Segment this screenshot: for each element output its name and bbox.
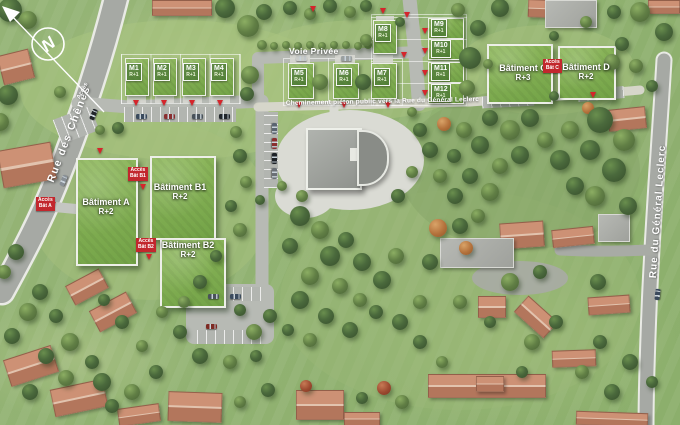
tree: [615, 37, 629, 51]
lot-name: M7: [377, 70, 387, 77]
lot-badge-m8: M8 R+1: [375, 24, 391, 42]
tree: [437, 117, 451, 131]
car: [341, 56, 352, 61]
building-floors: R+2: [552, 72, 620, 81]
label-batiment-b1: Bâtiment B1 R+2: [145, 182, 215, 202]
tree: [471, 136, 489, 154]
access-pin: [404, 12, 410, 18]
tree: [459, 80, 475, 96]
tree: [447, 188, 463, 204]
building-floors: R+2: [71, 207, 141, 216]
lot-name: M10: [434, 42, 448, 49]
label-batiment-a: Bâtiment A R+2: [71, 197, 141, 217]
tree: [223, 355, 237, 369]
tree: [256, 4, 272, 20]
tree: [255, 195, 265, 205]
lot-floors: R+1: [436, 49, 445, 56]
tree: [511, 146, 529, 164]
tree: [407, 107, 417, 117]
tree: [388, 248, 404, 264]
tree: [413, 295, 427, 309]
lot-floors: R+1: [214, 72, 223, 79]
tree: [355, 74, 371, 90]
tree: [54, 86, 66, 98]
tree: [241, 66, 259, 84]
tree: [646, 80, 658, 92]
tree: [587, 107, 613, 133]
tree: [98, 294, 110, 306]
tree: [451, 3, 465, 17]
context-building: [552, 349, 597, 368]
tree: [85, 355, 99, 369]
tree: [38, 348, 54, 364]
car: [272, 168, 277, 179]
tree: [360, 0, 372, 12]
lot-name: M9: [434, 21, 444, 28]
tree: [246, 324, 262, 340]
car: [230, 294, 241, 299]
tree: [462, 168, 478, 184]
tree: [575, 365, 589, 379]
access-pin: [97, 148, 103, 154]
tree: [342, 322, 358, 338]
tree: [240, 87, 254, 101]
tree: [58, 370, 74, 386]
context-building: [478, 296, 506, 318]
tree: [257, 40, 267, 50]
tree: [549, 315, 563, 329]
tree: [173, 325, 187, 339]
access-line2: Bât C: [545, 66, 560, 72]
tree: [602, 158, 626, 182]
tree: [373, 271, 391, 289]
street-label-voie-privee: Voie Privée: [289, 46, 339, 56]
tree: [484, 316, 496, 328]
tree: [549, 91, 559, 101]
car: [164, 114, 175, 119]
tree: [105, 399, 119, 413]
lot-floors: R+1: [377, 77, 386, 84]
tree: [282, 324, 294, 336]
lot-badge-m5: M5 R+1: [291, 68, 307, 86]
lot-floors: R+1: [378, 33, 387, 40]
tree: [613, 129, 635, 151]
tree: [353, 293, 367, 307]
access-pin: [422, 28, 428, 34]
tree: [342, 41, 350, 49]
tree: [332, 278, 348, 294]
tree: [580, 140, 600, 160]
tree: [585, 186, 605, 206]
building-floors: R+3: [488, 73, 558, 82]
access-pin: [161, 100, 167, 106]
access-pin: [422, 70, 428, 76]
tree: [225, 200, 237, 212]
tree: [413, 123, 427, 137]
tree: [178, 296, 190, 308]
car: [219, 114, 230, 119]
label-batiment-b2: Bâtiment B2 R+2: [153, 240, 223, 260]
building-name: Bâtiment D: [552, 62, 620, 72]
context-building: [576, 411, 648, 425]
tree: [422, 254, 438, 270]
tree: [282, 238, 298, 254]
tree: [622, 354, 638, 370]
tree: [360, 34, 372, 46]
tree: [95, 125, 105, 135]
tree: [433, 169, 447, 183]
lot-name: M1: [129, 65, 139, 72]
tree: [291, 291, 309, 309]
tree: [49, 309, 63, 323]
access-line2: Bât B1: [130, 174, 146, 180]
context-building: [344, 412, 380, 425]
tree: [537, 132, 553, 148]
lot-name: M2: [157, 65, 167, 72]
tree: [192, 348, 208, 364]
tree: [318, 308, 334, 324]
lot-badge-m4: M4 R+1: [211, 63, 227, 81]
tree: [19, 303, 37, 321]
tree: [233, 223, 247, 237]
tree: [149, 365, 163, 379]
tree: [470, 20, 486, 36]
access-pin: [422, 90, 428, 96]
tree: [237, 15, 259, 37]
lot-badge-m9: M9 R+1: [431, 19, 447, 37]
lot-floors: R+1: [294, 77, 303, 84]
car: [272, 153, 277, 164]
lot-badge-m1: M1 R+1: [126, 63, 142, 81]
car: [136, 114, 147, 119]
tree: [521, 109, 539, 127]
tree: [501, 273, 519, 291]
tree: [406, 166, 418, 178]
tree: [263, 309, 277, 323]
tree: [580, 16, 592, 28]
tree: [471, 209, 485, 223]
tree: [356, 392, 368, 404]
tree: [629, 59, 643, 73]
tree: [32, 284, 48, 300]
tree: [377, 381, 391, 395]
lot-floors: R+1: [436, 72, 445, 79]
tree: [561, 121, 579, 139]
access-pin: [401, 52, 407, 58]
tree: [8, 244, 24, 260]
access-badge-bat-c: Accès Bât C: [543, 59, 562, 73]
lot-badge-m6: M6 R+1: [336, 68, 352, 86]
tree: [413, 335, 427, 349]
tree: [533, 265, 547, 279]
tree: [646, 376, 658, 388]
car: [296, 56, 307, 61]
tree: [482, 110, 498, 126]
tree: [93, 373, 111, 391]
access-pin: [133, 100, 139, 106]
context-building: [167, 391, 222, 423]
tree: [353, 253, 371, 271]
tree: [296, 190, 308, 202]
tree: [234, 304, 246, 316]
tree: [655, 23, 673, 41]
tree: [447, 149, 461, 163]
tree: [524, 334, 540, 350]
tree: [395, 395, 409, 409]
tree: [230, 126, 242, 138]
access-badge-bat-a: Accès Bât A: [36, 197, 55, 211]
tree: [630, 2, 650, 22]
context-building: [152, 0, 212, 16]
tree: [590, 274, 606, 290]
context-building: [476, 376, 504, 392]
site-plan: M1 R+1 M2 R+1 M3 R+1 M4 R+1 M5 R+1 M6 R+…: [0, 0, 680, 425]
tree: [124, 384, 140, 400]
tree: [459, 47, 481, 69]
driveway-pad: [373, 55, 393, 63]
tree: [453, 295, 467, 309]
tree: [500, 120, 520, 140]
access-pin: [422, 48, 428, 54]
tree: [22, 384, 38, 400]
tree: [436, 356, 448, 368]
lot-name: M5: [294, 70, 304, 77]
tree: [312, 74, 328, 90]
tree: [492, 158, 508, 174]
tree: [429, 219, 447, 237]
access-pin: [590, 92, 596, 98]
building-name: Bâtiment B1: [145, 182, 215, 192]
lot-badge-m11: M11 R+1: [431, 63, 450, 81]
lot-name: M4: [214, 65, 224, 72]
tree: [344, 6, 356, 18]
access-pin: [217, 100, 223, 106]
tree: [391, 189, 405, 203]
tree: [61, 333, 79, 351]
label-batiment-d: Bâtiment D R+2: [552, 62, 620, 82]
access-pin: [380, 8, 386, 14]
tree: [136, 340, 148, 352]
tree: [550, 150, 570, 170]
car: [208, 294, 219, 299]
tree: [261, 383, 275, 397]
tree: [452, 218, 468, 234]
tree: [593, 335, 607, 349]
lot-name: M3: [186, 65, 196, 72]
tree: [240, 176, 252, 188]
lot-badge-m3: M3 R+1: [183, 63, 199, 81]
tree: [277, 181, 287, 191]
tree: [115, 315, 129, 329]
context-building: [587, 295, 630, 316]
tree: [338, 232, 354, 248]
tree: [422, 142, 438, 158]
car: [272, 138, 277, 149]
lot-floors: R+1: [434, 28, 443, 35]
lot-floors: R+1: [186, 72, 195, 79]
lot-floors: R+1: [339, 77, 348, 84]
car: [206, 324, 217, 329]
tree: [549, 31, 559, 41]
tree: [566, 177, 584, 195]
lot-floors: R+1: [157, 72, 166, 79]
tree: [456, 122, 472, 138]
lot-name: M12: [434, 86, 448, 93]
car: [192, 114, 203, 119]
lot-badge-m10: M10 R+1: [431, 40, 451, 58]
building-name: Bâtiment B2: [153, 240, 223, 250]
lot-name: M6: [339, 70, 349, 77]
access-badge-bat-b2: Accès Bât B2: [136, 238, 156, 252]
tree: [283, 1, 297, 15]
tree: [193, 275, 207, 289]
tree: [369, 305, 383, 319]
access-line2: Bât A: [38, 204, 53, 210]
context-building: [296, 390, 344, 420]
access-line2: Bât B2: [138, 245, 154, 251]
tree: [233, 149, 247, 163]
access-pin: [146, 254, 152, 260]
tree: [156, 306, 168, 318]
access-pin: [310, 6, 316, 12]
tree: [392, 314, 408, 330]
access-badge-bat-b1: Accès Bât B1: [128, 167, 148, 181]
building-name: Bâtiment A: [71, 197, 141, 207]
tree: [234, 396, 246, 408]
car: [272, 123, 277, 134]
building-floors: R+2: [153, 250, 223, 259]
lot-badge-m7: M7 R+1: [374, 68, 390, 86]
tree: [4, 328, 20, 344]
access-pin: [189, 100, 195, 106]
lot-floors: R+1: [129, 72, 138, 79]
tree: [619, 197, 637, 215]
context-building: [598, 214, 630, 242]
tree: [516, 366, 528, 378]
context-building: [648, 0, 680, 14]
tree: [303, 333, 317, 347]
tree: [301, 267, 319, 285]
context-building: [440, 238, 514, 268]
tree: [459, 241, 473, 255]
tree: [19, 11, 37, 29]
tree: [270, 42, 278, 50]
tree: [320, 246, 340, 266]
lot-badge-m2: M2 R+1: [154, 63, 170, 81]
tree: [395, 17, 405, 27]
tree: [604, 384, 620, 400]
tree: [311, 221, 329, 239]
tree: [481, 183, 499, 201]
tree: [290, 206, 310, 226]
lot-name: M11: [434, 65, 447, 72]
tree: [112, 122, 124, 134]
lot-name: M8: [378, 26, 388, 33]
tree: [300, 380, 312, 392]
tree: [250, 350, 262, 362]
tree: [607, 5, 621, 19]
building-floors: R+2: [145, 192, 215, 201]
